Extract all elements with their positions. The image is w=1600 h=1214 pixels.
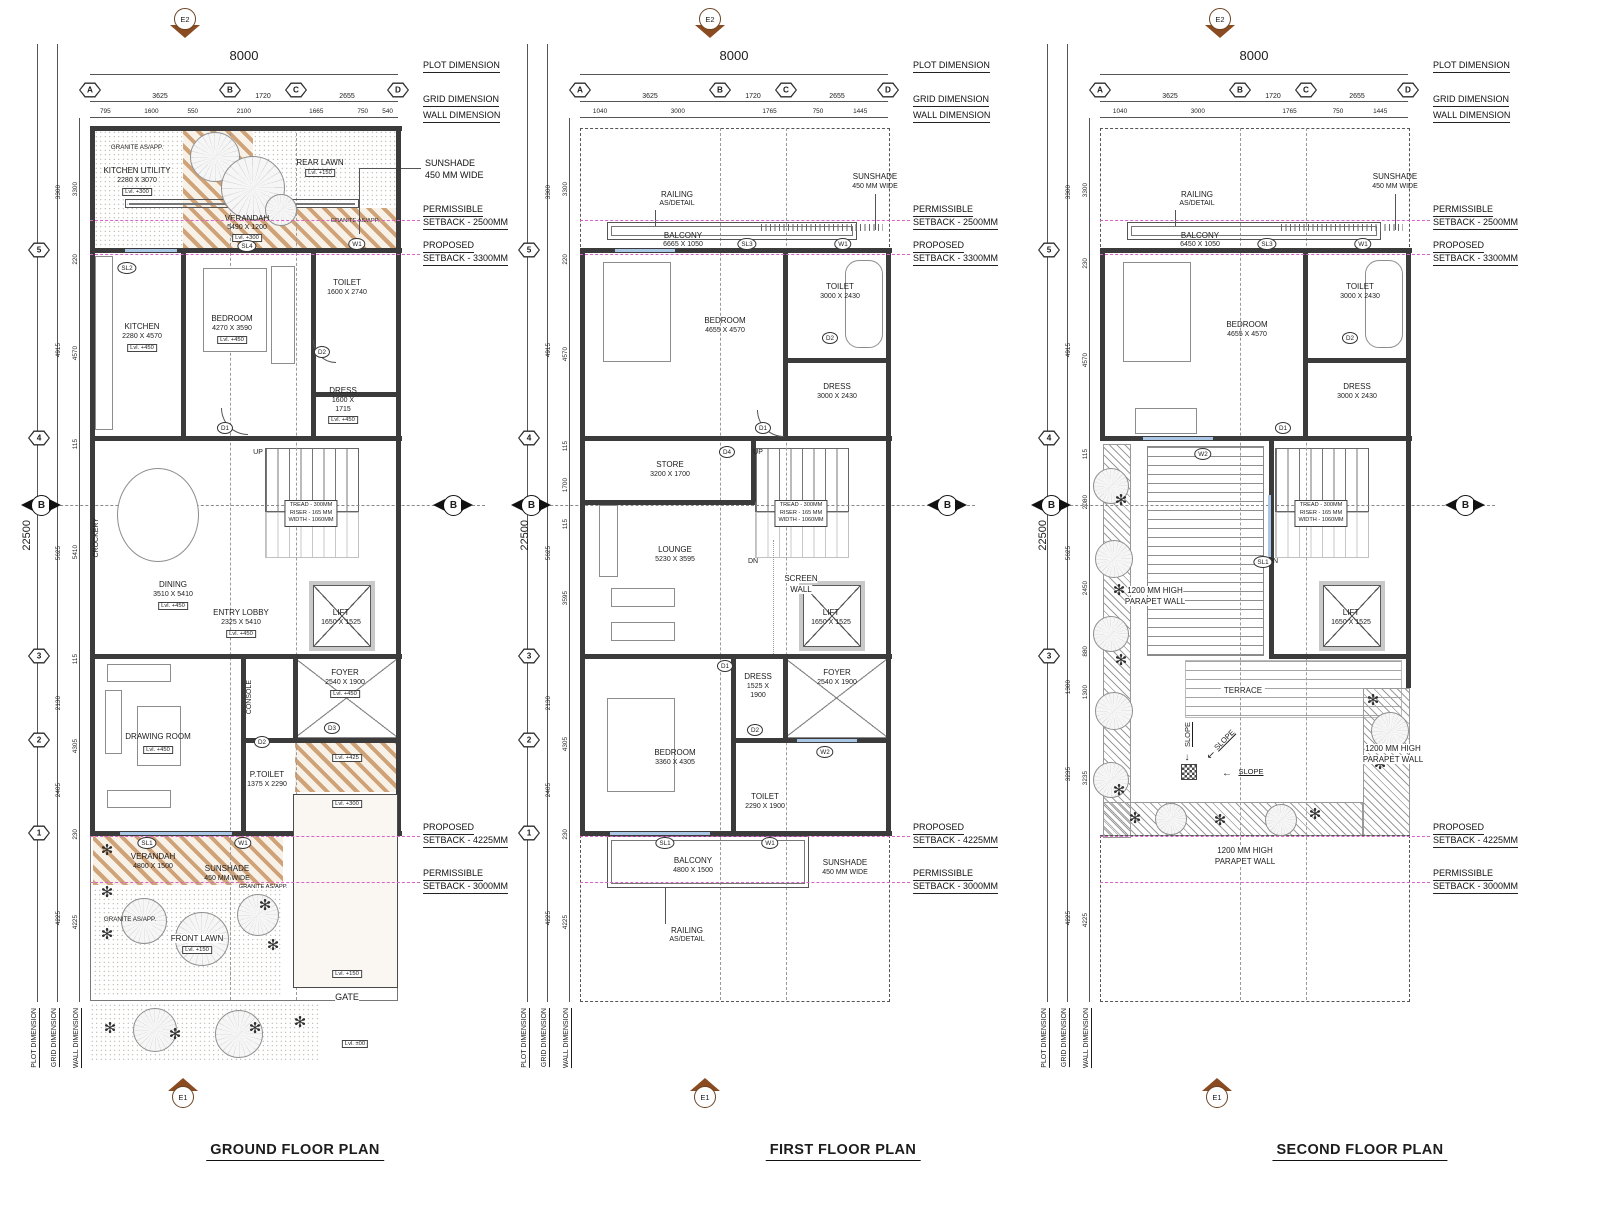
grid-marker-A: A: [79, 83, 101, 98]
room-drawing: DRAWING ROOM: [125, 732, 190, 741]
room-ptoilet: P.TOILET: [250, 770, 284, 779]
permissible-setback-2500: PERMISSIBLESETBACK - 2500MM: [913, 204, 998, 230]
sofa: [599, 505, 618, 577]
window: [125, 249, 177, 252]
room-balcony2: BALCONY: [674, 856, 712, 865]
room-toilet: TOILET: [333, 278, 361, 287]
e2-label: E2: [174, 8, 196, 30]
tag-sl1: SL1: [137, 837, 156, 849]
wall-dims-row: 795160055021001665750540: [90, 106, 398, 116]
wall-dim-line: [90, 117, 398, 118]
tree: [265, 194, 297, 226]
row-marker-5: 5: [28, 243, 50, 258]
proposed-setback-3300: PROPOSEDSETBACK - 3300MM: [423, 240, 508, 266]
sunshade-label: SUNSHADE: [853, 172, 897, 181]
proposed-setback-4225: PROPOSEDSETBACK - 4225MM: [913, 822, 998, 848]
screen-wall-line: [773, 540, 774, 658]
sunshade-label2: SUNSHADE: [823, 858, 867, 867]
ground-floor-panel: E2 8000 A B C D 3625 1720 2655 795160055…: [25, 0, 530, 1214]
grid-dimension-label: GRID DIMENSION: [423, 94, 499, 107]
sofa: [107, 790, 171, 808]
room-rear-lawn: REAR LAWN: [296, 158, 343, 167]
wardrobe: [271, 266, 295, 364]
verandah-hatch: [93, 835, 283, 885]
setback-line: [90, 254, 420, 255]
tag-d1: D1: [717, 660, 733, 672]
hedge-strip: [90, 1003, 320, 1061]
ref-line: [37, 44, 38, 1002]
wall-dimension-label: WALL DIMENSION: [423, 110, 500, 123]
dn-label: DN: [748, 558, 758, 566]
second-floor-panel: E2 8000 A B C D 3625 1720 2655 104030001…: [1035, 0, 1540, 1214]
room-toilet: TOILET: [1346, 282, 1374, 291]
section-marker-B-right: B: [433, 496, 473, 514]
left-grid-dims: 330049155625213024054225: [51, 128, 65, 1000]
plot-width: 8000: [230, 48, 259, 63]
left-grid-dims: 330049155625130032354225: [1061, 128, 1075, 1000]
level: Lvl. +150: [305, 169, 335, 177]
level: Lvl. +450: [127, 344, 157, 352]
sunshade-front: SUNSHADE: [205, 864, 249, 873]
ground-floor-title: GROUND FLOOR PLAN: [206, 1142, 384, 1161]
sofa: [611, 622, 675, 641]
room-foyer: FOYER: [823, 668, 851, 677]
north-marker-e2: E2: [170, 8, 200, 38]
left-grid-dims: 330049155625213024054225: [541, 128, 555, 1000]
plot-height: 22500: [21, 520, 33, 551]
sofa: [107, 664, 171, 682]
sunshade-ticks: [761, 224, 883, 231]
bathtub: [1365, 260, 1403, 348]
dining-table: [117, 468, 199, 562]
sofa: [1135, 408, 1197, 434]
tag-d4: D4: [719, 446, 735, 458]
level: Lvl. +300: [332, 800, 362, 808]
wall-dims-row: 1040300017657501445: [580, 106, 888, 116]
kitchen-counter: [95, 256, 113, 430]
room-bedroom: BEDROOM: [1226, 320, 1267, 329]
permissible-setback-3000: PERMISSIBLESETBACK - 3000MM: [423, 868, 508, 894]
room-store: STORE: [656, 460, 683, 469]
sofa: [105, 690, 122, 754]
north-marker-e2: E2: [1205, 8, 1235, 38]
setback-line: [90, 836, 420, 837]
north-marker-e2: E2: [695, 8, 725, 38]
permissible-setback-2500: PERMISSIBLESETBACK - 2500MM: [423, 204, 508, 230]
grid-marker-C: C: [285, 83, 307, 98]
level: Lvl. +450: [158, 602, 188, 610]
level: Lvl. +150: [182, 946, 212, 954]
north-marker-e1: E1: [690, 1078, 720, 1108]
row-marker-3: 3: [28, 649, 50, 664]
tag-d2: D2: [822, 332, 838, 344]
left-wall-dims: 3300230457011520802450880130032354225: [1079, 128, 1091, 1000]
tag-d2: D2: [254, 736, 270, 748]
drawing-sheet: { "colors":{"hatch_tan":"#cfa277","setba…: [0, 0, 1600, 1214]
up-label: UP: [753, 449, 763, 457]
crockery-label: CROCKERY: [93, 518, 100, 558]
railing-label: RAILING: [661, 190, 693, 199]
slope-arrow-icon: ←: [1222, 768, 1232, 780]
parapet-label-left: 1200 MM HIGH: [1127, 586, 1183, 595]
room-balcony: BALCONY: [1181, 231, 1219, 240]
grid-marker-B: B: [219, 83, 241, 98]
level: Lvl. ±00: [342, 1040, 368, 1048]
room-lounge: LOUNGE: [658, 545, 692, 554]
level: Lvl. +300: [122, 188, 152, 196]
window: [1143, 437, 1213, 440]
proposed-setback-4225: PROPOSEDSETBACK - 4225MM: [423, 822, 508, 848]
granite-note: GRANITE AS/APP.: [111, 144, 163, 151]
bed: [1123, 262, 1191, 362]
stair-note: TREAD - 300MMRISER - 165 MMWIDTH - 1060M…: [774, 500, 827, 527]
grid-marker-D: D: [387, 83, 409, 98]
slope-label: SLOPE: [1183, 722, 1192, 747]
grid-dim: 2655: [337, 93, 357, 101]
tag-sl2: SL2: [117, 262, 136, 274]
tag-d2: D2: [1342, 332, 1358, 344]
level: Lvl. +450: [330, 690, 360, 698]
room-dress: DRESS: [823, 382, 851, 391]
front-lawn-label: FRONT LAWN: [171, 934, 223, 943]
room-bedroom: BEDROOM: [704, 316, 745, 325]
level: Lvl. +450: [217, 336, 247, 344]
window: [615, 249, 675, 252]
grid-marker-B: B: [709, 83, 731, 98]
trellis: [1147, 446, 1264, 656]
stair-note: TREAD - 300MMRISER - 165 MMWIDTH - 1060M…: [284, 500, 337, 527]
tag-d1: D1: [217, 422, 233, 434]
sunshade-ticks: [1281, 224, 1403, 231]
window: [120, 832, 232, 835]
tag-d3: D3: [324, 722, 340, 734]
lift-label: LIFT: [333, 608, 349, 617]
plot-dim-line: [90, 74, 398, 75]
proposed-setback-3300: PROPOSEDSETBACK - 3300MM: [913, 240, 998, 266]
room-foyer: FOYER: [331, 668, 359, 677]
permissible-setback-3000: PERMISSIBLESETBACK - 3000MM: [913, 868, 998, 894]
tag-sl4: SL4: [237, 240, 256, 252]
bathtub: [845, 260, 883, 348]
second-floor-title: SECOND FLOOR PLAN: [1272, 1142, 1447, 1161]
parapet-bottom: [1103, 802, 1363, 836]
row-marker-2: 2: [28, 733, 50, 748]
first-floor-title: FIRST FLOOR PLAN: [766, 1142, 921, 1161]
left-wall-dims: 33002204570115541011543052304225: [69, 128, 81, 1000]
stair-note: TREAD - 300MMRISER - 165 MMWIDTH - 1060M…: [1294, 500, 1347, 527]
first-floor-panel: E2 8000 A B C D 3625 1720 2655 104030001…: [515, 0, 1020, 1214]
slope-label: SLOPE: [1213, 728, 1237, 752]
section-marker-B-left: B: [511, 496, 551, 514]
pergola: [293, 794, 398, 988]
tag-d1: D1: [755, 422, 771, 434]
left-wall-dims: 330022045701151700115359543052304225: [559, 128, 571, 1000]
room-toilet: TOILET: [826, 282, 854, 291]
up-label: UP: [253, 449, 263, 457]
plot-dimension-vlabel: PLOT DIMENSION: [31, 1008, 38, 1068]
slope-arrow-icon: ↓: [1185, 752, 1190, 764]
tag-sl1: SL1: [1253, 556, 1272, 568]
tag-d2: D2: [314, 346, 330, 358]
tag-sl3: SL3: [1257, 238, 1276, 250]
level: Lvl. +425: [332, 754, 362, 762]
grid-dim: 1720: [253, 93, 273, 101]
level: Lvl. +450: [328, 416, 358, 424]
e1-label: E1: [172, 1086, 194, 1108]
tag-d2: D2: [747, 724, 763, 736]
tag-sl1: SL1: [655, 837, 674, 849]
drain-point: [1181, 764, 1197, 780]
sofa: [611, 588, 675, 607]
window: [610, 832, 710, 835]
room-toilet2: TOILET: [751, 792, 779, 801]
room-verandah-front: VERANDAH: [131, 852, 175, 861]
level: Lvl. +450: [143, 746, 173, 754]
wall-dimension-vlabel: WALL DIMENSION: [73, 1008, 80, 1068]
sunshade-annotation: SUNSHADE450 MM WIDE: [425, 158, 484, 181]
north-marker-e1: E1: [168, 1078, 198, 1108]
porch-hatch: [295, 742, 396, 792]
room-dress: DRESS: [329, 386, 357, 395]
room-dress2: DRESS: [744, 672, 772, 681]
slope-label: SLOPE: [1238, 768, 1263, 777]
room-dining: DINING: [159, 580, 187, 589]
window: [1268, 495, 1271, 557]
room-balcony: BALCONY: [664, 231, 702, 240]
terrace-label: TERRACE: [1221, 686, 1265, 695]
section-marker-B-left: B: [21, 496, 61, 514]
room-kitchen-utility: KITCHEN UTILITY: [103, 166, 170, 175]
grid-marker-C: C: [775, 83, 797, 98]
slope-arrow-icon: ↙: [1207, 750, 1215, 762]
tag-sl3: SL3: [737, 238, 756, 250]
railing-label2: RAILING: [671, 926, 703, 935]
north-marker-e1: E1: [1202, 1078, 1232, 1108]
parapet-label-bottom: 1200 MM HIGH: [1217, 846, 1273, 855]
grid-marker-D: D: [877, 83, 899, 98]
screen-wall-label: SCREEN: [784, 574, 817, 583]
room-bedroom: BEDROOM: [211, 314, 252, 323]
room-entry-lobby: ENTRY LOBBY: [213, 608, 269, 617]
plot-width: 8000: [720, 48, 749, 63]
leader: [359, 168, 421, 169]
section-marker-B-right: B: [927, 496, 967, 514]
lift-label: LIFT: [823, 608, 839, 617]
granite-note: GRANITE AS/APP.: [239, 884, 288, 891]
parapet-label-right: 1200 MM HIGH: [1365, 744, 1421, 753]
wall-dims-row: 1040300017657501445: [1100, 106, 1408, 116]
setback-line: [90, 882, 420, 883]
room-bedroom2: BEDROOM: [654, 748, 695, 757]
row-marker-1: 1: [28, 826, 50, 841]
tag-w2: W2: [816, 746, 833, 758]
setback-line: [90, 220, 420, 221]
grid-dimension-vlabel: GRID DIMENSION: [51, 1008, 58, 1067]
level: Lvl. +150: [332, 970, 362, 978]
bed: [603, 262, 671, 362]
room-verandah: VERANDAH: [225, 214, 269, 223]
gate-label: GATE: [335, 992, 359, 1003]
row-marker-4: 4: [28, 431, 50, 446]
granite-note: GRANITE AS/APP.: [104, 916, 156, 923]
bed: [607, 698, 675, 792]
grid-dim: 3625: [150, 93, 170, 101]
window: [797, 739, 857, 742]
console-label: CONSOLE: [246, 680, 253, 714]
plot-dimension-label: PLOT DIMENSION: [423, 60, 500, 73]
level: Lvl. +450: [226, 630, 256, 638]
room-kitchen: KITCHEN: [124, 322, 159, 331]
room-dress: DRESS: [1343, 382, 1371, 391]
grid-marker-A: A: [569, 83, 591, 98]
tag-d1: D1: [1275, 422, 1291, 434]
